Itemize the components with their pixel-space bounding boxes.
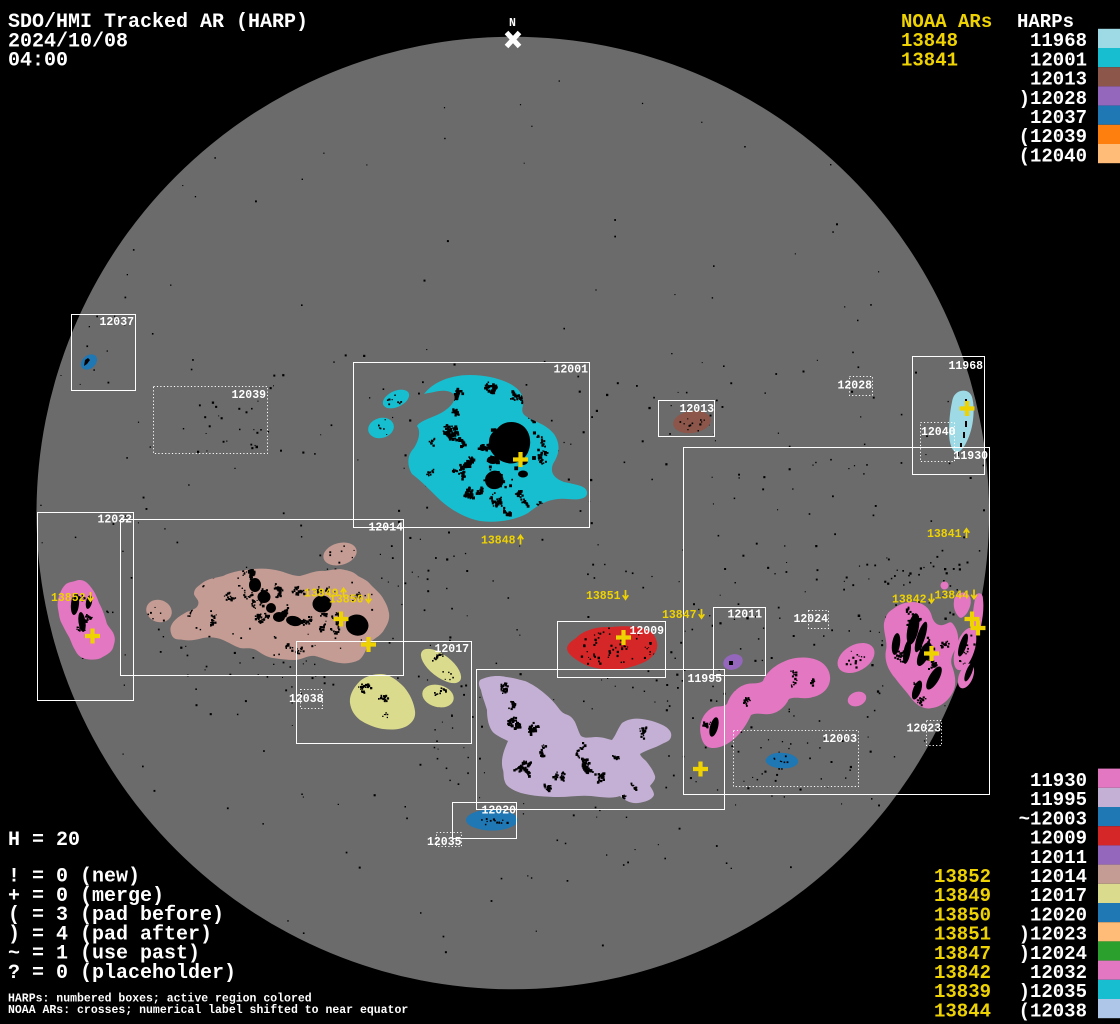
svg-text:13848: 13848 [481,535,516,548]
svg-text:13842: 13842 [892,594,927,607]
svg-text:13847: 13847 [662,609,697,622]
svg-text:13841: 13841 [927,528,962,541]
svg-text:(12040: (12040 [1019,145,1087,167]
svg-text:13852: 13852 [51,592,86,605]
svg-text:04:00: 04:00 [8,50,68,73]
svg-text:12009: 12009 [629,625,664,638]
svg-text:N: N [509,17,516,30]
svg-text:12014: 12014 [368,522,403,535]
svg-text:12024: 12024 [793,613,828,626]
svg-text:13844: 13844 [934,1000,991,1022]
svg-text:11930: 11930 [953,450,988,463]
svg-text:NOAA ARs: crosses; numerical l: NOAA ARs: crosses; numerical label shift… [8,1004,408,1017]
svg-text:12028: 12028 [837,380,872,393]
svg-text:12017: 12017 [434,643,469,656]
svg-text:12037: 12037 [99,316,134,329]
svg-text:12023: 12023 [906,723,941,736]
svg-text:H = 20: H = 20 [8,829,80,852]
svg-text:12040: 12040 [921,426,956,439]
svg-text:12035: 12035 [427,836,462,849]
svg-text:13850: 13850 [329,594,364,607]
svg-text:11968: 11968 [948,360,983,373]
svg-text:12039: 12039 [231,389,266,402]
svg-text:(12038: (12038 [1019,1000,1087,1022]
svg-text:12001: 12001 [553,364,588,377]
svg-text:12032: 12032 [97,514,132,527]
svg-text:13841: 13841 [901,49,958,71]
svg-text:12003: 12003 [822,733,857,746]
svg-text:12013: 12013 [679,403,714,416]
svg-text:11995: 11995 [687,673,722,686]
svg-text:12011: 12011 [727,609,762,622]
svg-text:? = 0 (placeholder): ? = 0 (placeholder) [8,962,236,985]
svg-text:13851: 13851 [586,590,621,603]
svg-text:12038: 12038 [289,693,324,706]
svg-text:12020: 12020 [481,805,516,818]
svg-text:13844: 13844 [935,590,970,603]
